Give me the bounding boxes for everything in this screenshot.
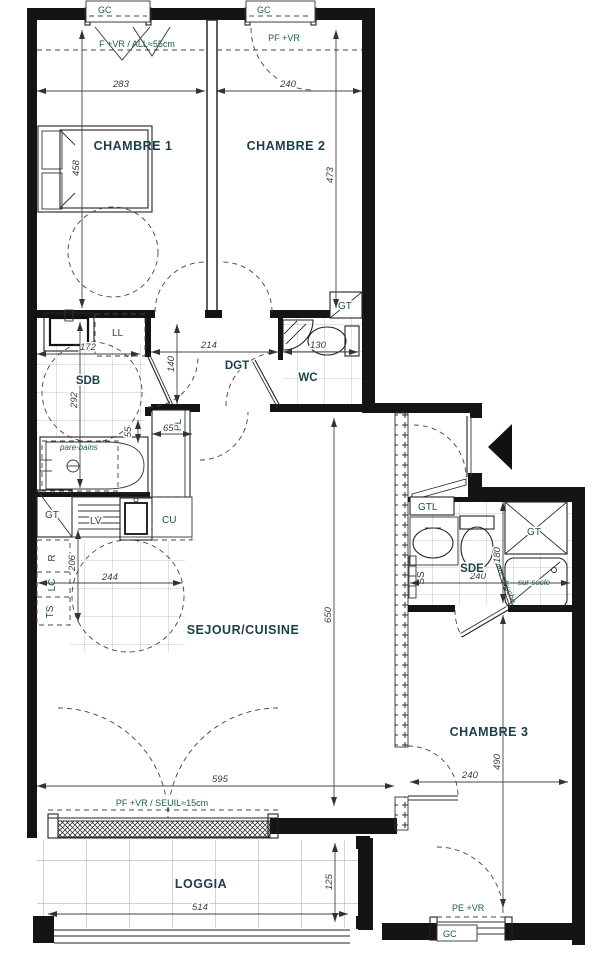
hatched-wall-strip — [395, 413, 408, 830]
entrance-arrow-icon — [488, 424, 512, 470]
dim-490: 490 — [492, 753, 503, 770]
label-sde: SDE — [460, 563, 484, 575]
dim-244: 244 — [101, 572, 118, 583]
dim-55: 55 — [123, 426, 134, 437]
gtl-label: GTL — [418, 502, 438, 513]
dim-180: 180 — [492, 546, 503, 563]
gt-label-1: GT — [338, 301, 352, 312]
bay-window-sejour — [48, 708, 278, 838]
chambre-divider-wall — [207, 20, 217, 312]
floor-plan-page: GC GC GC PE +VR — [0, 0, 613, 955]
label-sdb: SDB — [76, 375, 100, 387]
dim-458: 458 — [71, 159, 82, 176]
gc-label-window2: GC — [257, 5, 271, 15]
label-chambre1: CHAMBRE 1 — [94, 139, 173, 153]
door-leaf-sde — [462, 610, 508, 637]
door-swing-chambre2 — [222, 262, 272, 312]
ts-label: TS — [45, 605, 56, 618]
door-leaf-wc — [255, 360, 280, 406]
label-chambre3: CHAMBRE 3 — [450, 725, 529, 739]
turning-circle-chambre1 — [68, 207, 158, 297]
window-chambre2: GC — [245, 1, 316, 90]
dim-214: 214 — [200, 340, 217, 351]
window-ch2-label: PF +VR — [268, 33, 300, 43]
appliance-column: R LC TS — [37, 540, 70, 625]
gc-label-window1: GC — [98, 5, 112, 15]
door-swing-chambre1 — [155, 262, 205, 312]
gt-duct-chambre2: GT — [330, 292, 362, 318]
dim-172: 172 — [80, 342, 97, 353]
pare-bains-label: pare-bains — [59, 443, 98, 452]
dishwasher: LV — [78, 505, 120, 529]
dim-514: 514 — [192, 902, 208, 913]
dim-650: 650 — [323, 606, 334, 623]
dim-130: 130 — [310, 340, 327, 351]
dim-206: 206 — [67, 554, 78, 572]
lv-label: LV — [90, 516, 102, 527]
dimension-lines: 283 240 458 473 172 292 214 140 130 65 5… — [37, 30, 570, 922]
kitchen-sink — [120, 498, 152, 540]
dim-125: 125 — [324, 873, 335, 890]
gt-label-3: GT — [527, 527, 541, 538]
label-chambre2: CHAMBRE 2 — [247, 139, 326, 153]
fridge-label: R — [47, 554, 58, 561]
loggia-railing — [54, 930, 350, 943]
bay-window-label: PF +VR / SEUIL≈15cm — [116, 798, 208, 808]
door-swing-chambre3 — [408, 746, 458, 796]
dim-595: 595 — [212, 774, 229, 785]
dim-292: 292 — [69, 391, 80, 409]
door-swing-entry — [414, 425, 466, 477]
ll-label: LL — [112, 328, 124, 339]
wc-tiles — [283, 318, 362, 404]
dim-65: 65 — [163, 423, 174, 434]
label-sejour: SEJOUR/CUISINE — [187, 623, 300, 637]
window-ch1-label: F +VR / ALL≈55cm — [99, 39, 175, 49]
dim-240-ch3: 240 — [461, 770, 479, 781]
label-loggia: LOGGIA — [175, 877, 227, 891]
dim-140: 140 — [166, 355, 177, 372]
sdb-tiles — [37, 345, 145, 437]
sur-socle-label: sur socle — [518, 578, 551, 587]
gt-duct-sde: GT — [505, 502, 567, 554]
dim-473: 473 — [325, 166, 336, 183]
cu-label: CU — [162, 515, 176, 526]
pl-label: PL — [173, 418, 184, 431]
gt-label-2: GT — [45, 510, 59, 521]
lc-label: LC — [47, 579, 58, 592]
dim-283: 283 — [112, 79, 130, 90]
dim-240-ch2: 240 — [279, 79, 297, 90]
label-wc: WC — [298, 372, 317, 384]
label-dgt: DGT — [225, 360, 249, 372]
door-swing-dgt — [200, 412, 248, 460]
floor-plan-drawing: GC GC GC PE +VR — [0, 0, 613, 955]
gc-label-window3: GC — [443, 929, 457, 939]
window-chambre3: GC PE +VR — [430, 847, 512, 941]
pe-vr-label: PE +VR — [452, 903, 485, 913]
